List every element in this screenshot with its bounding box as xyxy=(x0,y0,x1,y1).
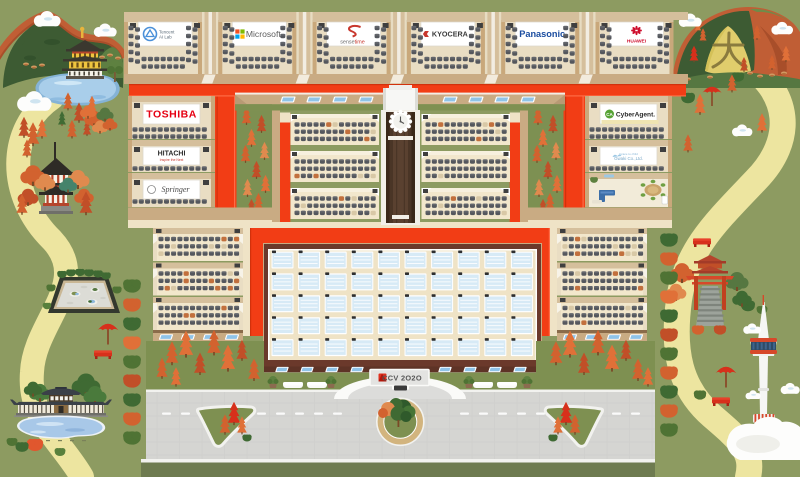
svg-text:HUAWEI: HUAWEI xyxy=(627,39,647,45)
svg-text:Springer: Springer xyxy=(162,185,191,194)
svg-text:Gwaki Co.,Ltd.: Gwaki Co.,Ltd. xyxy=(614,156,643,161)
svg-text:time: time xyxy=(355,40,365,46)
svg-text:sense: sense xyxy=(340,40,354,46)
svg-text:KYOCERA: KYOCERA xyxy=(432,30,468,39)
svg-text:AI Lab: AI Lab xyxy=(159,35,172,40)
svg-text:Microsoft: Microsoft xyxy=(246,29,281,39)
svg-text:TOSHIBA: TOSHIBA xyxy=(146,109,197,121)
svg-text:CCV 2O2O: CCV 2O2O xyxy=(382,374,422,383)
svg-text:CyberAgent.: CyberAgent. xyxy=(616,111,655,118)
svg-text:Inspire the Next: Inspire the Next xyxy=(160,158,184,162)
svg-text:HITACHI: HITACHI xyxy=(158,151,186,158)
svg-text:Panasonic: Panasonic xyxy=(519,29,565,39)
svg-text:CA: CA xyxy=(606,112,613,117)
